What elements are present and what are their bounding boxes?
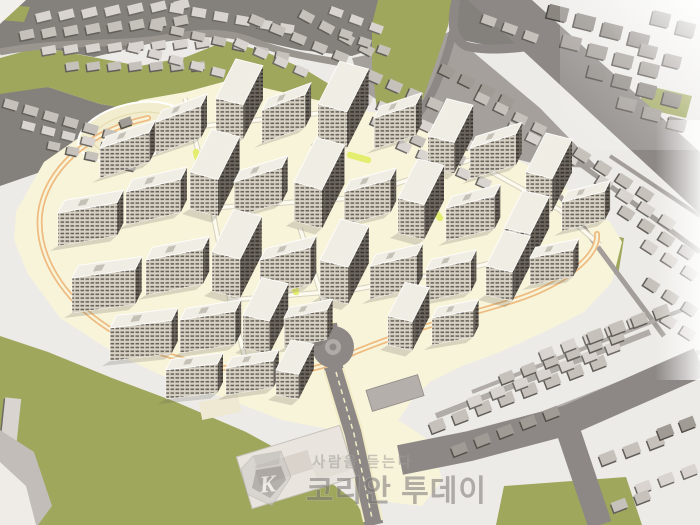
city-block [85,61,101,72]
aerial-rendering-canvas: K 사람을 듣는다 코리안 투데이 [0,0,700,525]
fade-right-edge [655,120,700,380]
watermark-brand: 코리안 투데이 [306,475,487,508]
tower-face-lit [388,316,412,351]
tower-face-lit [398,198,424,240]
watermark-slogan: 사람을 듣는다 [312,454,414,471]
city-block [64,61,80,72]
tower-face-lit [243,315,269,354]
tower-face-lit [212,252,240,298]
city-block [127,61,143,72]
rendering-image: K 사람을 듣는다 코리안 투데이 [0,0,700,525]
tower-face-lit [276,370,299,399]
tower-face-lit [294,182,322,229]
tower-face-lit [320,260,348,304]
roundabout-center [330,344,337,351]
city-block [106,61,122,72]
city-block [148,61,164,72]
